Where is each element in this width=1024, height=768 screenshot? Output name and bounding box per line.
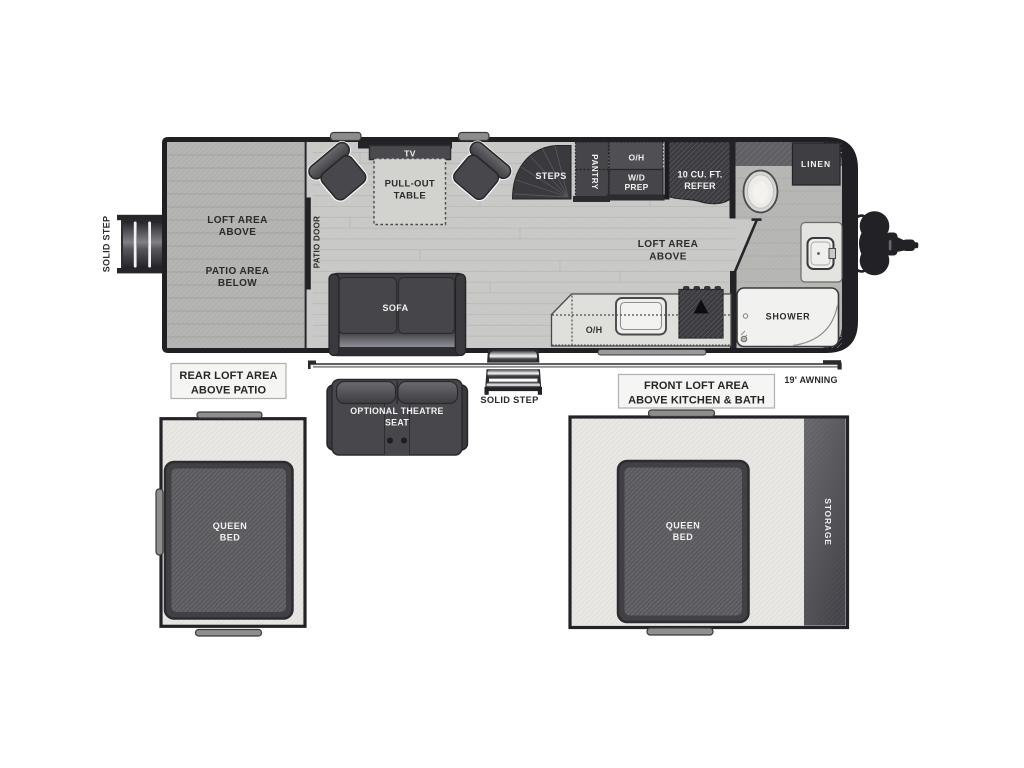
svg-text:TV: TV — [404, 149, 416, 159]
svg-text:STEPS: STEPS — [535, 171, 566, 181]
svg-text:SOFA: SOFA — [382, 303, 408, 313]
svg-text:OPTIONAL THEATRE: OPTIONAL THEATRE — [350, 406, 443, 416]
svg-text:PANTRY: PANTRY — [590, 154, 599, 190]
svg-text:QUEEN: QUEEN — [666, 521, 701, 531]
svg-text:QUEEN: QUEEN — [213, 521, 248, 531]
svg-text:W/D: W/D — [628, 173, 645, 183]
svg-text:LINEN: LINEN — [801, 159, 831, 169]
svg-text:ABOVE KITCHEN & BATH: ABOVE KITCHEN & BATH — [628, 395, 765, 407]
svg-text:BED: BED — [220, 533, 241, 543]
svg-text:PATIO DOOR: PATIO DOOR — [313, 216, 322, 268]
svg-text:19' AWNING: 19' AWNING — [784, 375, 837, 385]
svg-text:REFER: REFER — [684, 181, 716, 191]
svg-text:ABOVE: ABOVE — [649, 252, 687, 263]
svg-text:BELOW: BELOW — [218, 278, 257, 289]
svg-text:SEAT: SEAT — [385, 418, 409, 428]
svg-text:REAR LOFT AREA: REAR LOFT AREA — [179, 370, 277, 382]
svg-text:PULL-OUT: PULL-OUT — [385, 179, 435, 190]
svg-text:LOFT AREA: LOFT AREA — [207, 215, 267, 226]
svg-text:SOLID STEP: SOLID STEP — [480, 395, 538, 405]
svg-text:SOLID STEP: SOLID STEP — [102, 216, 112, 273]
svg-text:BED: BED — [673, 532, 694, 542]
svg-text:LOFT AREA: LOFT AREA — [638, 239, 698, 250]
svg-text:ABOVE: ABOVE — [219, 227, 257, 238]
svg-text:PREP: PREP — [625, 182, 649, 192]
svg-text:PATIO AREA: PATIO AREA — [206, 266, 270, 277]
svg-text:10 CU. FT.: 10 CU. FT. — [677, 170, 722, 180]
svg-text:ABOVE PATIO: ABOVE PATIO — [191, 385, 267, 397]
svg-text:SHOWER: SHOWER — [766, 312, 811, 322]
svg-text:O/H: O/H — [586, 325, 603, 335]
svg-text:FRONT LOFT AREA: FRONT LOFT AREA — [644, 380, 749, 392]
svg-text:STORAGE: STORAGE — [823, 498, 833, 545]
svg-text:O/H: O/H — [628, 153, 644, 163]
svg-text:TABLE: TABLE — [394, 191, 426, 202]
